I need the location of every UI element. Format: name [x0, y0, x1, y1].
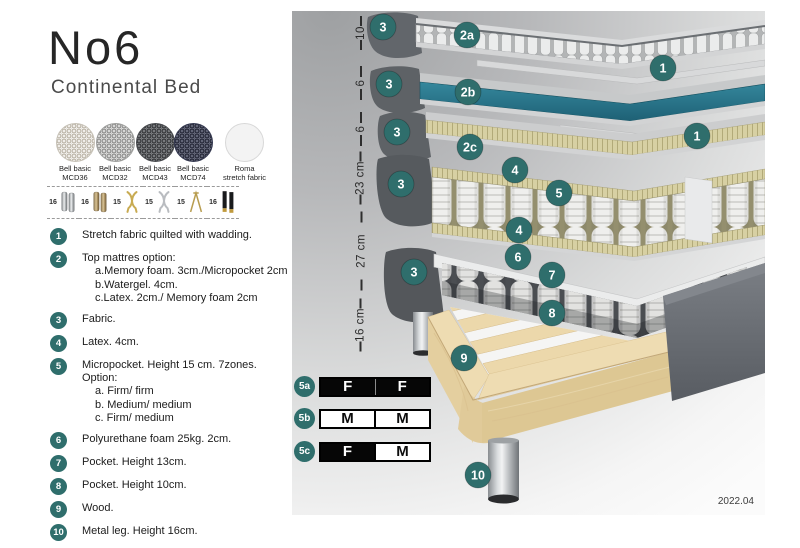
firmness-bar: F M [319, 442, 431, 462]
layer-top-mattress-2a [367, 12, 765, 69]
leg-height: 16 [209, 199, 217, 206]
ruler-label: 6 [355, 126, 367, 133]
legend-text: Fabric. [82, 313, 116, 325]
legend-item: 8 Pocket. Height 10cm. [50, 479, 290, 495]
firmness-cell: F [375, 379, 430, 395]
legend-item: 4 Latex. 4cm. [50, 336, 290, 352]
firmness-cell: F [321, 444, 374, 460]
callout-polyurethane-6: 6 [505, 244, 531, 270]
legend-text: Pocket. Height 13cm. [82, 456, 187, 468]
ruler-tick [360, 195, 362, 205]
legend-text: Micropocket. Height 15 cm. 7zones. Optio… [82, 359, 290, 386]
ruler-label: 10 [355, 26, 367, 40]
metal-cylinder-leg-icon [59, 189, 77, 215]
legend-number-badge: 1 [50, 228, 67, 245]
legend-number-badge: 5 [50, 358, 67, 375]
fabric-swatch-label: Bell basic MCD36 [55, 165, 95, 182]
svg-text:3: 3 [394, 126, 401, 140]
leg-option: 16 [79, 186, 111, 219]
firmness-row-5c: 5c F M [294, 441, 431, 462]
legend-item: 7 Pocket. Height 13cm. [50, 456, 290, 472]
version-date: 2022.04 [718, 496, 754, 507]
fabric-swatches: Bell basic MCD36 Bell basic MCD32 Bell b… [55, 123, 268, 182]
fabric-swatch-image [174, 123, 213, 162]
legend-item: 3 Fabric. [50, 313, 290, 329]
black-tapered-leg-icon [219, 189, 237, 215]
fabric-swatch-label: Bell basic MCD43 [135, 165, 175, 182]
ruler-tick [361, 212, 363, 223]
legend-text: Latex. 4cm. [82, 336, 139, 348]
legend-text: Pocket. Height 10cm. [82, 479, 187, 491]
legend-sub-option: c.Latex. 2cm./ Memory foam 2cm [95, 292, 288, 305]
ruler-tick [361, 280, 363, 291]
callout-fabric-3: 3 [401, 259, 427, 285]
ruler-label: 27 cm [356, 234, 368, 268]
legend-sub-option: a.Memory foam. 3cm./Micropocket 2cm [95, 265, 288, 278]
ruler-section-6b: 6 [353, 112, 369, 146]
ruler-tick [360, 89, 362, 100]
ruler-tick [360, 342, 362, 352]
firmness-cell: M [321, 411, 374, 427]
firmness-cell: M [374, 444, 429, 460]
svg-text:3: 3 [398, 178, 405, 192]
legend-number-badge: 3 [50, 312, 67, 329]
firmness-bar: M M [319, 409, 431, 429]
legend-number-badge: 2 [50, 251, 67, 268]
fabric-swatch-label: Bell basic MCD32 [95, 165, 135, 182]
callout-fabric-3: 3 [384, 119, 410, 145]
leg-height: 16 [49, 199, 57, 206]
legend-text: Stretch fabric quilted with wadding. [82, 229, 252, 241]
fabric-swatch-image [56, 123, 95, 162]
legend-number-badge: 4 [50, 335, 67, 352]
legend-sub-option: c. Firm/ medium [95, 412, 290, 425]
leg-option: 16 [47, 186, 79, 219]
leg-height: 16 [81, 199, 89, 206]
svg-text:7: 7 [549, 269, 556, 283]
layer-legend: 1 Stretch fabric quilted with wadding. 2… [50, 229, 290, 548]
leg-option: 15 [111, 186, 143, 219]
ruler-tick [360, 152, 362, 162]
svg-text:1: 1 [694, 130, 701, 144]
legend-number-badge: 10 [50, 524, 67, 541]
fabric-swatch-image [96, 123, 135, 162]
callout-latex-4: 4 [506, 217, 532, 243]
fabric-swatch: Roma stretch fabric [221, 123, 268, 182]
ruler-label: 16 cm [355, 308, 367, 342]
legend-text: Top mattres option: [82, 252, 288, 265]
fabric-swatch: Bell basic MCD74 [173, 123, 213, 182]
svg-text:9: 9 [461, 352, 468, 366]
svg-text:2b: 2b [461, 86, 476, 100]
firmness-badge: 5c [294, 441, 315, 462]
svg-text:1: 1 [660, 62, 667, 76]
silver-twisted-leg-icon [155, 189, 173, 215]
leg-height: 15 [113, 199, 121, 206]
legend-item: 9 Wood. [50, 502, 290, 518]
firmness-badge: 5a [294, 376, 315, 397]
firmness-badge: 5b [294, 408, 315, 429]
page-subtitle: Continental Bed [51, 77, 201, 99]
diagram-panel: 3 2a 1 3 2b 3 2c 1 4 3 5 4 6 3 7 8 9 10 … [292, 11, 765, 515]
leg-options-row: 16 16 15 15 15 16 [47, 186, 239, 219]
svg-text:2a: 2a [460, 29, 475, 43]
svg-text:6: 6 [515, 251, 522, 265]
fabric-swatch-image [136, 123, 175, 162]
callout-fabric-3: 3 [388, 171, 414, 197]
ruler-label: 6 [355, 80, 367, 87]
legend-sub-option: b. Medium/ medium [95, 399, 290, 412]
legend-sub-option: b.Watergel. 4cm. [95, 279, 288, 292]
ruler-section-10: 10 [353, 16, 369, 50]
legend-text: Polyurethane foam 25kg. 2cm. [82, 433, 231, 445]
legend-item: 2 Top mattres option: a.Memory foam. 3cm… [50, 252, 290, 306]
callout-stretch-fabric-1: 1 [650, 55, 676, 81]
ruler-tick [360, 135, 362, 146]
gold-twisted-leg-icon [123, 189, 141, 215]
callout-stretch-fabric-1: 1 [684, 123, 710, 149]
svg-text:8: 8 [549, 307, 556, 321]
page-title: No6 [48, 20, 143, 75]
leg-height: 15 [177, 199, 185, 206]
legend-item: 1 Stretch fabric quilted with wadding. [50, 229, 290, 245]
ruler-tick [360, 40, 362, 50]
callout-top-option-2c: 2c [457, 134, 483, 160]
fabric-swatch: Bell basic MCD43 [135, 123, 175, 182]
callout-latex-4: 4 [502, 157, 528, 183]
svg-text:3: 3 [386, 78, 393, 92]
svg-text:3: 3 [380, 21, 387, 35]
ruler-section-23cm: 23 cm [353, 152, 369, 205]
fabric-swatch-label: Bell basic MCD74 [173, 165, 213, 182]
callout-micropocket-5: 5 [546, 180, 572, 206]
wood-cylinder-leg-icon [91, 189, 109, 215]
fabric-swatch: Bell basic MCD32 [95, 123, 135, 182]
layer-micropocket-mattress [376, 155, 765, 261]
leg-option: 15 [143, 186, 175, 219]
legend-text: Wood. [82, 502, 114, 514]
callout-wood-9: 9 [451, 345, 477, 371]
legend-item: 5 Micropocket. Height 15 cm. 7zones. Opt… [50, 359, 290, 426]
base-side-upholstery [663, 263, 765, 401]
firmness-row-5a: 5a F F [294, 376, 431, 397]
legend-number-badge: 9 [50, 501, 67, 518]
ruler-tick [360, 16, 362, 26]
callout-pocket-8: 8 [539, 300, 565, 326]
fabric-swatch-image [225, 123, 264, 162]
legend-number-badge: 6 [50, 432, 67, 449]
callout-fabric-3: 3 [370, 14, 396, 40]
legend-text: Metal leg. Height 16cm. [82, 525, 198, 537]
firmness-row-5b: 5b M M [294, 408, 431, 429]
firmness-cell: M [374, 411, 429, 427]
bed-front-leg [488, 438, 519, 504]
leg-height: 15 [145, 199, 153, 206]
svg-text:5: 5 [556, 187, 563, 201]
hairpin-leg-icon [187, 189, 205, 215]
ruler-tick [360, 112, 362, 123]
legend-item: 6 Polyurethane foam 25kg. 2cm. [50, 433, 290, 449]
callout-fabric-3: 3 [376, 71, 402, 97]
callout-metal-leg-10: 10 [465, 462, 491, 488]
callout-top-option-2a: 2a [454, 22, 480, 48]
leg-option: 15 [175, 186, 207, 219]
ruler-label: 23 cm [355, 161, 367, 195]
fabric-swatch-label: Roma stretch fabric [221, 165, 268, 182]
ruler-section-16cm: 16 cm [353, 299, 369, 352]
svg-text:2c: 2c [463, 141, 477, 155]
legend-number-badge: 7 [50, 455, 67, 472]
legend-sub-option: a. Firm/ firm [95, 385, 290, 398]
ruler-section-27cm: 27 cm [354, 212, 370, 291]
svg-text:3: 3 [411, 266, 418, 280]
svg-text:10: 10 [471, 469, 485, 483]
callout-top-option-2b: 2b [455, 79, 481, 105]
legend-number-badge: 8 [50, 478, 67, 495]
fabric-swatch: Bell basic MCD36 [55, 123, 95, 182]
ruler-tick [360, 66, 362, 77]
firmness-cell: F [321, 379, 375, 395]
callout-pocket-7: 7 [539, 262, 565, 288]
ruler-tick [360, 299, 362, 309]
ruler-section-6a: 6 [353, 66, 369, 100]
firmness-bar: F F [319, 377, 431, 397]
svg-text:4: 4 [512, 164, 519, 178]
leg-option: 16 [207, 186, 239, 219]
svg-text:4: 4 [516, 224, 523, 238]
